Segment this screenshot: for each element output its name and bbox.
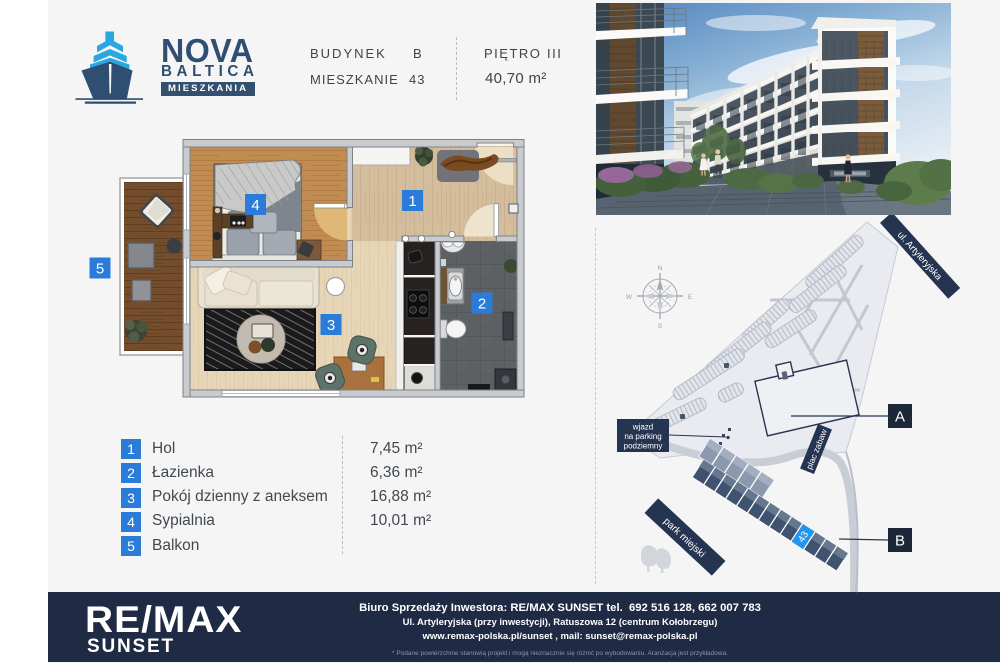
svg-text:W: W: [626, 294, 633, 301]
svg-text:5: 5: [96, 261, 104, 278]
svg-text:3: 3: [327, 317, 335, 334]
svg-text:E: E: [688, 294, 693, 301]
svg-text:4: 4: [251, 197, 259, 214]
svg-text:podziemny: podziemny: [624, 442, 663, 451]
svg-text:wjazd: wjazd: [632, 423, 653, 432]
svg-text:A: A: [895, 409, 905, 426]
svg-text:B: B: [895, 533, 905, 550]
svg-text:S: S: [658, 323, 663, 330]
svg-text:na parking: na parking: [624, 432, 661, 441]
svg-text:2: 2: [478, 296, 486, 313]
svg-text:ul. Artyleryjska: ul. Artyleryjska: [895, 230, 945, 283]
svg-text:N: N: [658, 265, 663, 272]
svg-text:1: 1: [408, 193, 416, 210]
